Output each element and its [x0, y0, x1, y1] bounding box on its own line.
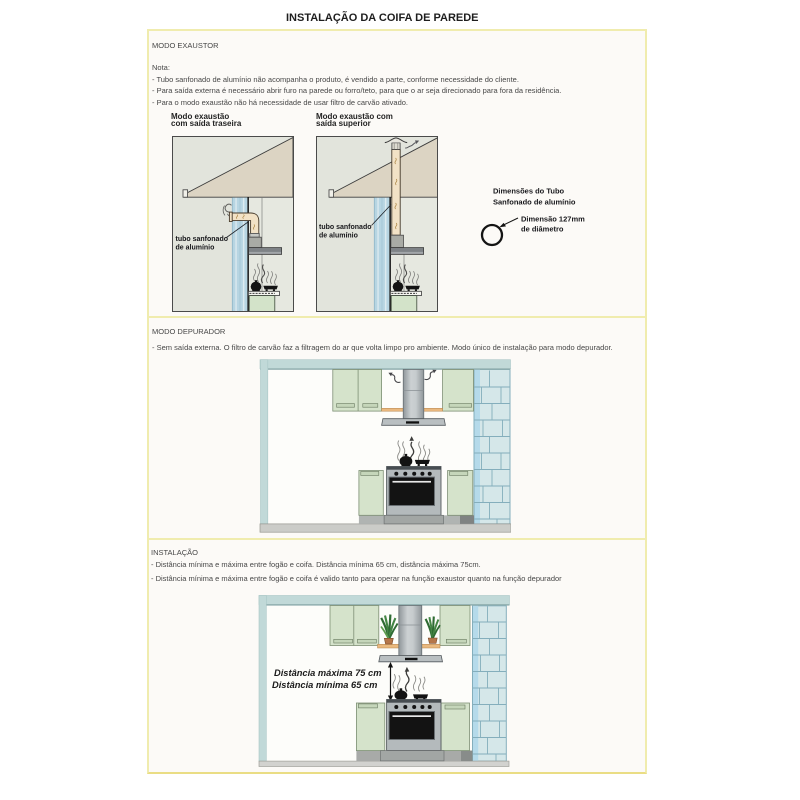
svg-text:Sanfonado de alumínio: Sanfonado de alumínio: [493, 198, 576, 207]
svg-text:tubo sanfonado: tubo sanfonado: [175, 235, 228, 242]
svg-text:de diâmetro: de diâmetro: [521, 225, 564, 234]
svg-text:tubo sanfonado: tubo sanfonado: [319, 223, 372, 230]
svg-text:Dimensão 127mm: Dimensão 127mm: [521, 215, 585, 224]
svg-text:de alumínio: de alumínio: [175, 244, 214, 251]
svg-text:Dimensões do Tubo: Dimensões do Tubo: [493, 187, 565, 196]
svg-text:de alumínio: de alumínio: [319, 232, 358, 239]
